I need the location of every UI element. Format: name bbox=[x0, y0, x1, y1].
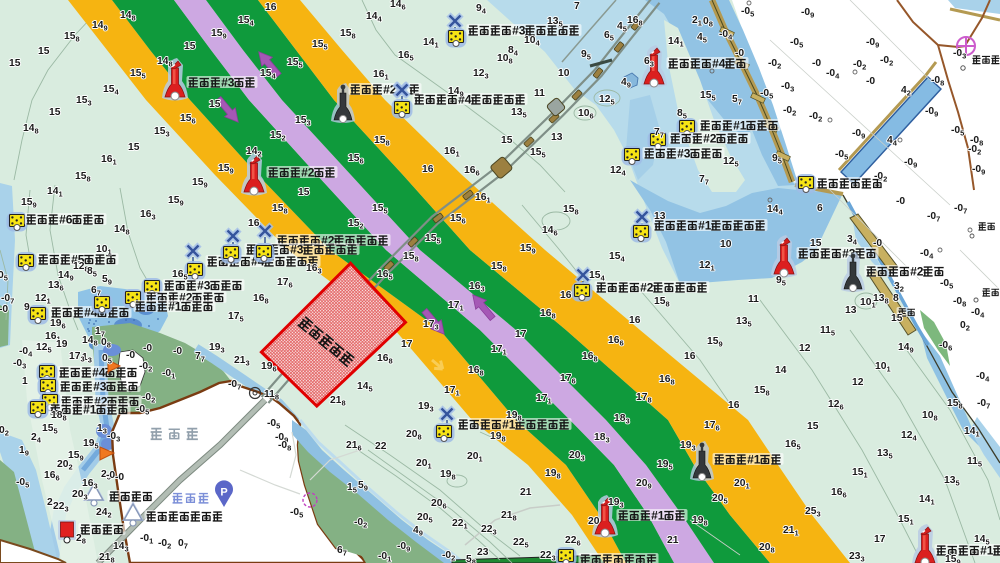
svg-text:16: 16 bbox=[248, 218, 260, 229]
svg-text:15: 15 bbox=[209, 99, 221, 110]
svg-text:-0: -0 bbox=[735, 48, 744, 59]
svg-text:15: 15 bbox=[49, 107, 61, 118]
svg-text:10: 10 bbox=[558, 68, 570, 79]
svg-text:#2: #2 bbox=[640, 281, 654, 295]
svg-text:P: P bbox=[220, 487, 227, 499]
svg-text:13: 13 bbox=[551, 132, 563, 143]
svg-text:#4: #4 bbox=[92, 366, 106, 380]
svg-text:19: 19 bbox=[56, 339, 68, 350]
svg-text:15: 15 bbox=[501, 135, 513, 146]
svg-text:#1: #1 bbox=[168, 300, 182, 314]
svg-text:15: 15 bbox=[128, 142, 140, 153]
svg-text:-0: -0 bbox=[873, 238, 882, 249]
svg-text:13: 13 bbox=[845, 305, 857, 316]
svg-text:15: 15 bbox=[9, 58, 21, 69]
svg-text:-0: -0 bbox=[143, 343, 152, 354]
svg-text:15: 15 bbox=[807, 421, 819, 432]
svg-text:#1: #1 bbox=[733, 119, 747, 133]
svg-text:16: 16 bbox=[265, 2, 277, 13]
svg-text:#3: #3 bbox=[221, 76, 235, 90]
svg-text:146: 146 bbox=[390, 0, 406, 12]
svg-text:-0: -0 bbox=[896, 196, 905, 207]
svg-text:#4: #4 bbox=[712, 57, 726, 71]
svg-text:#2: #2 bbox=[301, 166, 315, 180]
svg-text:6: 6 bbox=[817, 203, 823, 214]
svg-text:22: 22 bbox=[375, 441, 387, 452]
svg-text:12: 12 bbox=[799, 343, 811, 354]
svg-text:#6: #6 bbox=[59, 213, 73, 227]
svg-text:#2: #2 bbox=[703, 132, 717, 146]
svg-text:14: 14 bbox=[775, 365, 787, 376]
svg-text:-0: -0 bbox=[0, 304, 8, 315]
svg-text:#1: #1 bbox=[651, 509, 665, 523]
svg-text:11: 11 bbox=[748, 294, 759, 305]
svg-text:#1: #1 bbox=[698, 219, 712, 233]
svg-text:17: 17 bbox=[874, 534, 886, 545]
svg-text:11: 11 bbox=[534, 88, 545, 99]
svg-text:15: 15 bbox=[38, 46, 50, 57]
svg-text:15: 15 bbox=[298, 187, 310, 198]
svg-text:16: 16 bbox=[560, 290, 572, 301]
svg-text:23: 23 bbox=[477, 547, 489, 558]
svg-text:-0: -0 bbox=[106, 470, 115, 481]
svg-text:20: 20 bbox=[588, 516, 600, 527]
svg-text:10: 10 bbox=[720, 239, 732, 250]
svg-text:8: 8 bbox=[893, 293, 899, 304]
svg-text:7: 7 bbox=[574, 1, 580, 12]
svg-text:15: 15 bbox=[810, 238, 822, 249]
svg-text:#3: #3 bbox=[677, 147, 691, 161]
svg-text:15: 15 bbox=[184, 41, 196, 52]
svg-text:-0: -0 bbox=[115, 472, 124, 483]
svg-text:1: 1 bbox=[22, 376, 28, 387]
svg-text:#1: #1 bbox=[83, 403, 97, 417]
svg-text:15: 15 bbox=[891, 313, 903, 324]
svg-text:21: 21 bbox=[667, 535, 679, 546]
svg-text:9: 9 bbox=[24, 302, 30, 313]
svg-text:17: 17 bbox=[515, 329, 527, 340]
svg-text:-0: -0 bbox=[866, 76, 875, 87]
svg-text:#3: #3 bbox=[197, 279, 211, 293]
svg-text:#3: #3 bbox=[93, 380, 107, 394]
svg-text:-0: -0 bbox=[126, 350, 135, 361]
svg-text:#2: #2 bbox=[910, 265, 924, 279]
svg-text:-0: -0 bbox=[812, 58, 821, 69]
svg-text:16: 16 bbox=[728, 400, 740, 411]
svg-text:-0: -0 bbox=[173, 346, 182, 357]
svg-text:21: 21 bbox=[520, 487, 532, 498]
svg-text:#1: #1 bbox=[747, 453, 761, 467]
svg-text:16: 16 bbox=[684, 351, 696, 362]
svg-text:13: 13 bbox=[654, 211, 666, 222]
svg-text:16: 16 bbox=[422, 164, 434, 175]
svg-text:12: 12 bbox=[852, 377, 864, 388]
svg-text:#3: #3 bbox=[290, 243, 304, 257]
svg-text:17: 17 bbox=[401, 339, 413, 350]
svg-text:16: 16 bbox=[629, 315, 641, 326]
